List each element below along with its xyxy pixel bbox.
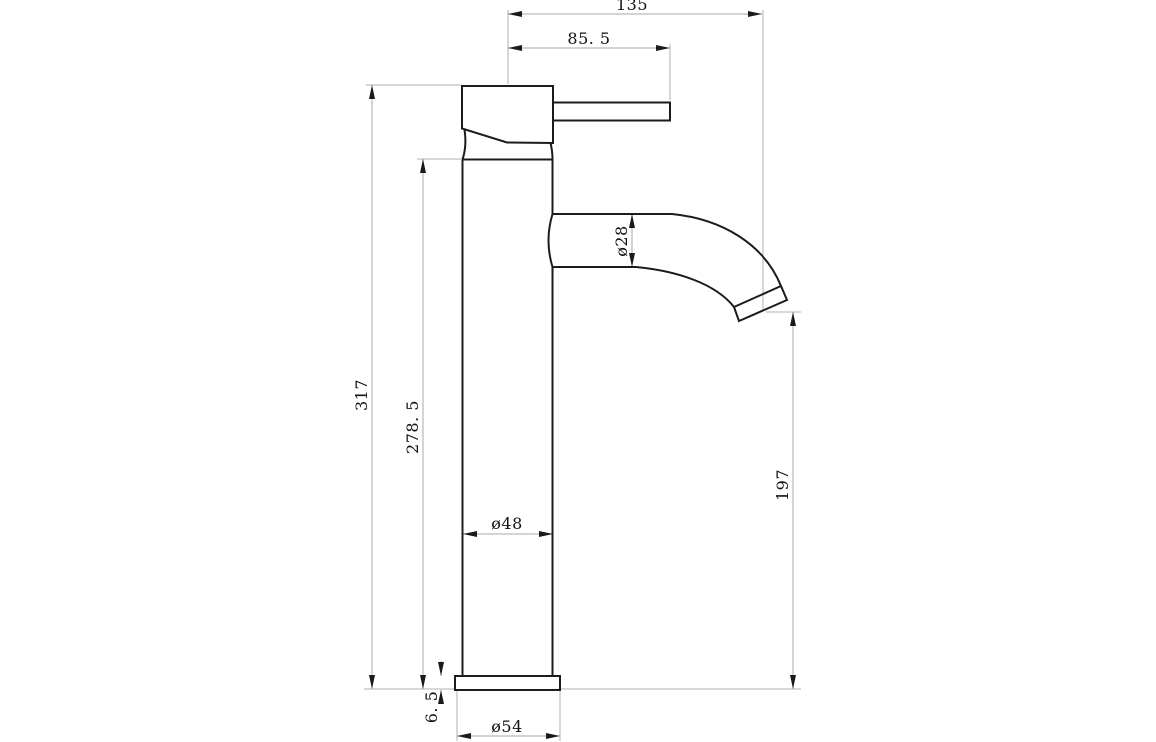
dim-label-6-5: 6. 5 <box>422 691 441 724</box>
spout-bottom-edge <box>553 267 735 307</box>
dim-label-317: 317 <box>352 379 371 411</box>
dim-label-dia54: ø54 <box>491 717 523 736</box>
neck-left-curve <box>463 130 466 160</box>
faucet-head <box>462 86 553 143</box>
dim-label-dia28: ø28 <box>612 225 631 257</box>
dim-label-197: 197 <box>773 469 792 501</box>
technical-drawing-page: 135 85. 5 317 278. 5 ø28 197 ø48 6. 5 ø5… <box>0 0 1156 742</box>
dim-label-dia48: ø48 <box>491 514 523 533</box>
faucet-outline <box>455 86 787 690</box>
spout-aerator-band <box>734 286 787 321</box>
dim-label-85-5: 85. 5 <box>567 29 610 48</box>
spout-root-cap <box>549 214 553 267</box>
neck-right-curve <box>551 143 553 160</box>
dim-label-135: 135 <box>616 0 648 14</box>
base-flange <box>455 676 560 690</box>
dim-label-278-5: 278. 5 <box>403 400 422 454</box>
faucet-dimension-drawing: 135 85. 5 317 278. 5 ø28 197 ø48 6. 5 ø5… <box>0 0 1156 742</box>
spout-top-edge <box>553 214 782 286</box>
handle-lever <box>553 103 670 121</box>
